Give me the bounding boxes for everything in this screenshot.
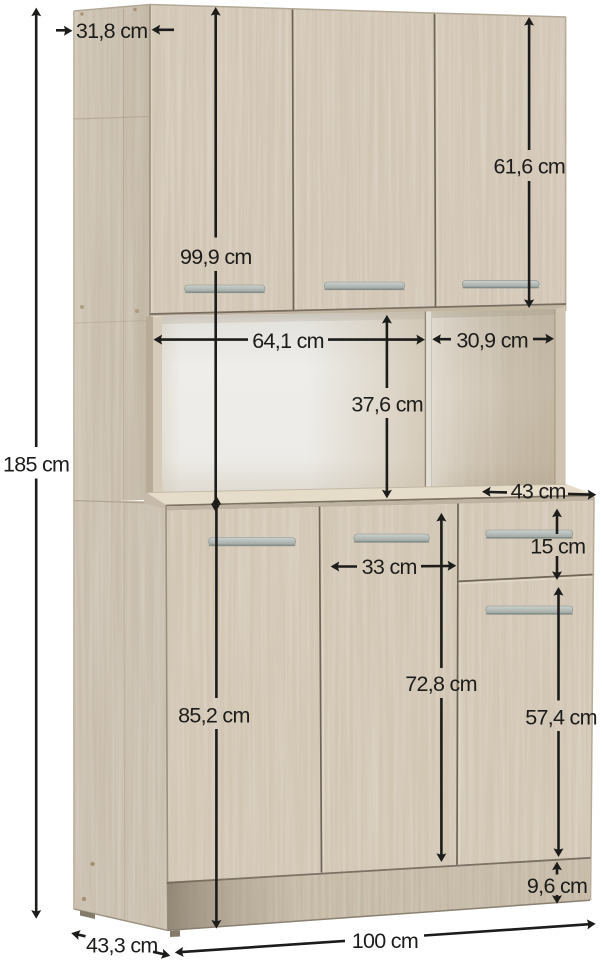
svg-text:43 cm: 43 cm xyxy=(511,479,566,503)
svg-text:31,8 cm: 31,8 cm xyxy=(76,19,148,43)
svg-text:85,2 cm: 85,2 cm xyxy=(178,703,250,727)
svg-text:37,6 cm: 37,6 cm xyxy=(351,392,423,416)
svg-text:64,1 cm: 64,1 cm xyxy=(252,329,324,353)
svg-text:72,8 cm: 72,8 cm xyxy=(405,672,477,696)
svg-text:99,9 cm: 99,9 cm xyxy=(180,245,252,269)
svg-text:100 cm: 100 cm xyxy=(352,929,418,953)
svg-text:9,6 cm: 9,6 cm xyxy=(527,874,587,898)
svg-text:30,9 cm: 30,9 cm xyxy=(456,329,528,353)
svg-text:33 cm: 33 cm xyxy=(362,555,417,579)
svg-text:43,3 cm: 43,3 cm xyxy=(86,934,158,958)
svg-text:185 cm: 185 cm xyxy=(3,453,69,477)
svg-text:15 cm: 15 cm xyxy=(530,534,585,558)
svg-text:57,4 cm: 57,4 cm xyxy=(525,706,597,730)
svg-text:61,6 cm: 61,6 cm xyxy=(494,155,566,179)
